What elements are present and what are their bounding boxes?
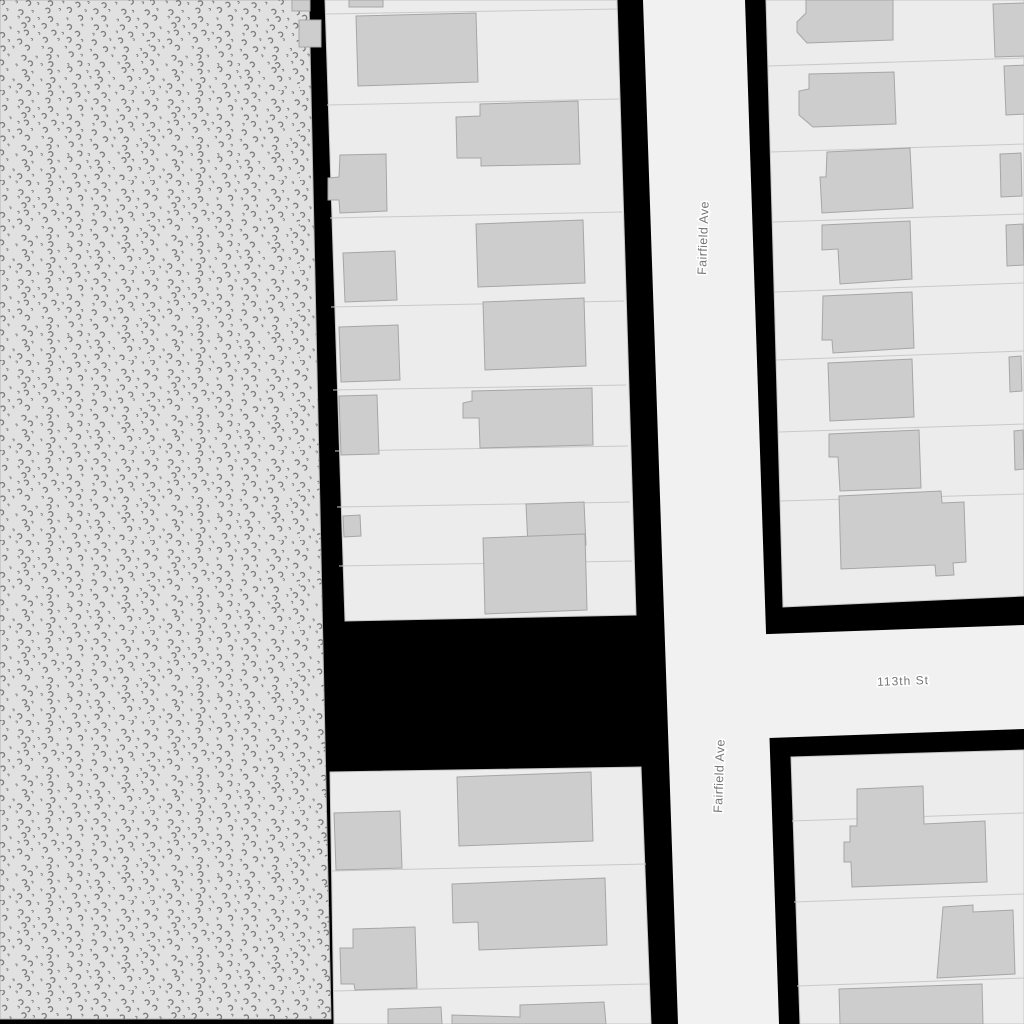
svg-text:113th St: 113th St [877,673,929,689]
svg-text:Fairfield Ave: Fairfield Ave [695,201,712,275]
svg-text:Fairfield Ave: Fairfield Ave [711,739,728,813]
